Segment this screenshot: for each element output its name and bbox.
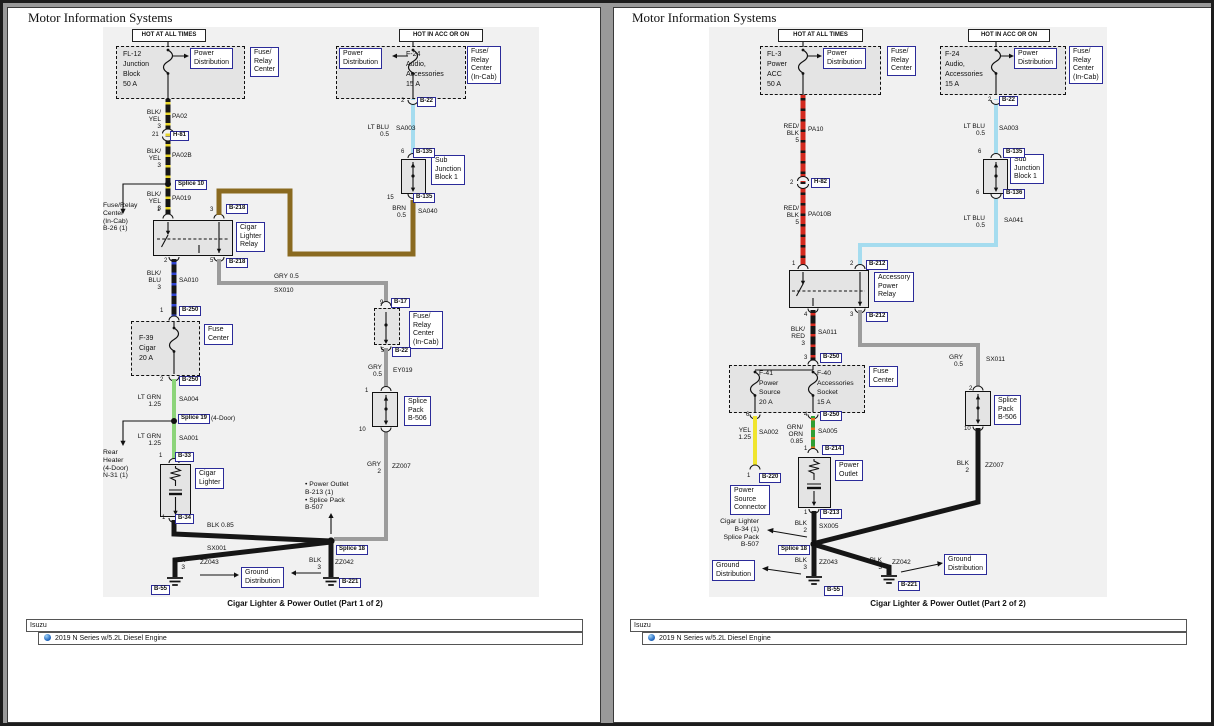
connector-tag: B-135 [413,193,435,203]
accessory-power-relay-label: Accessory Power Relay [874,272,914,302]
wire-label: RED/ BLK 5 [781,205,799,227]
power-distribution-label: Power Distribution [190,48,233,69]
ground-distribution-label: Ground Distribution [712,560,755,581]
circuit-label: PA010B [808,211,831,218]
wire-label: RED/ BLK 5 [781,123,799,145]
pin-number: 2 [850,261,853,267]
hot-in-acc-banner: HOT IN ACC OR ON [968,29,1050,42]
pin-number: 6 [401,149,404,155]
pin-number: 1 [804,510,807,516]
wire-label: BLK 3 [793,557,807,571]
pin-number: 1 [747,473,750,479]
wire-label: GRN/ ORN 0.85 [783,424,803,446]
fusible-link-fl3: FL-3 Power ACC 50 A [767,50,787,90]
pin-number: 6 [746,412,749,418]
wire-label: GRY 0.5 [366,364,382,378]
connector-tag: B-214 [822,445,844,455]
pin-number: 1 [792,261,795,267]
connector-tag: B-212 [866,260,888,270]
cigar-splice-note: Cigar Lighter B-34 (1) Splice Pack B-507 [701,518,759,549]
pin-number: 9 [380,300,383,306]
wire-label: BLK/ YEL 3 [143,191,161,213]
four-door-note: (4-Door) [211,415,235,422]
connector-tag: B-212 [866,312,888,322]
connector-tag: B-17 [391,298,410,308]
circuit-label: SA041 [1004,217,1024,224]
wire-label: LT BLU 0.5 [961,215,985,229]
pin-number: 10 [964,426,971,432]
connector-tag: B-220 [759,473,781,483]
splice-tag: Splice 19 [178,414,210,424]
connector-tag: B-33 [175,452,194,462]
globe-icon [44,634,51,641]
connector-tag: B-22 [417,97,436,107]
fuse-center-label: Fuse Center [204,324,233,345]
power-distribution-label: Power Distribution [1014,48,1057,69]
wire-label: BLK/ BLU 3 [143,270,161,292]
pin-number: 1 [162,515,165,521]
diagram-viewer: Motor Information Systems Motor Informat… [0,0,1214,726]
pin-number: 4 [804,412,807,418]
wire-label: BRN 0.5 [390,205,406,219]
pin-number: 21 [152,132,159,138]
connector-tag: B-135 [1003,148,1025,158]
fuse-relay-center-incab-label: Fuse/ Relay Center (In-Cab) [409,311,443,349]
wire-label: LT GRN 1.25 [137,433,161,447]
splice-pack-box [965,391,991,426]
power-distribution-label: Power Distribution [823,48,866,69]
circuit-label: SX011 [986,356,1005,363]
connector-tag: B-250 [820,353,842,363]
wire-label: BLK 3 [309,557,321,571]
circuit-label: SX010 [274,287,294,294]
accessory-power-relay-box [789,270,869,308]
splice-tag: Splice 18 [778,545,810,555]
wire-label: LT BLU 0.5 [365,124,389,138]
wire-label: GRY 0.5 [947,354,963,368]
sub-junction-block-box [401,159,426,194]
splice-tag: Splice 10 [175,180,207,190]
cigar-lighter-relay-box [153,220,233,256]
splice-pack-box [372,392,398,427]
globe-icon [648,634,655,641]
splice-tag: Splice 18 [336,545,368,555]
footer-brand-box: Isuzu [26,619,583,632]
wire-label: BLK/ RED 3 [787,326,805,348]
connector-tag: B-221 [898,581,920,591]
circuit-label: ZZ043 [819,559,838,566]
connector-tag: B-218 [226,258,248,268]
fusible-link-fl12: FL-12 Junction Block 50 A [123,50,149,90]
wire-label: BLK 2 [793,520,807,534]
circuit-label: SX001 [207,545,227,552]
circuit-label: SA011 [818,329,837,336]
circuit-label: SA002 [759,429,779,436]
wire-label: YEL 1.25 [733,427,751,441]
cigar-lighter-label: Cigar Lighter [195,468,224,489]
wire-label: GRY 2 [365,461,381,475]
circuit-label: SA003 [999,125,1019,132]
pin-number: 1 [804,446,807,452]
ground-distribution-label: Ground Distribution [241,567,284,588]
circuit-label: ZZ043 [200,559,219,566]
connector-tag: B-250 [179,306,201,316]
wire-label: GRY 0.5 [274,273,299,280]
wire-label: BLK 3 [173,557,185,571]
circuit-label: ZZ007 [392,463,411,470]
power-distribution-label: Power Distribution [339,48,382,69]
pin-number: 2 [401,98,404,104]
hot-in-acc-banner: HOT IN ACC OR ON [399,29,483,42]
sub-junction-label: Sub Junction Block 1 [431,155,465,185]
footer-brand-box: Isuzu [630,619,1187,632]
fuse-f24: F-24 Audio, Accessories 15 A [406,50,444,90]
connector-tag: B-135 [413,148,435,158]
circuit-label: SA005 [818,428,838,435]
pin-number: 2 [969,386,972,392]
connector-tag: B-221 [339,578,361,588]
fuse-f41: F-41 Power Source 20 A [759,369,781,407]
incab-passthrough-box [374,308,400,345]
circuit-label: SA040 [418,208,438,215]
sub-junction-label: Sub Junction Block 1 [1010,154,1044,184]
ground-distribution-label: Ground Distribution [944,554,987,575]
pin-number: 3 [850,312,853,318]
page-title: Motor Information Systems [28,10,172,26]
wire-label: LT GRN 1.25 [137,394,161,408]
pin-number: 1 [159,453,162,459]
cigar-lighter-relay-label: Cigar Lighter Relay [236,222,265,252]
pin-number: 1 [160,308,163,314]
footer-vehicle-box: 2019 N Series w/5.2L Diesel Engine [38,632,583,645]
circuit-label: PA019 [172,195,191,202]
pin-number: 3 [804,355,807,361]
connector-tag: B-55 [151,585,170,595]
connector-tag: B-22 [999,96,1018,106]
diagram-caption: Cigar Lighter & Power Outlet (Part 2 of … [803,599,1093,609]
circuit-label: SA003 [396,125,416,132]
wire-label: BLK/ YEL 3 [143,148,161,170]
power-source-connector-label: Power Source Connector [730,485,770,515]
splice-pack-label: Splice Pack B-506 [404,396,431,426]
pin-number: 5 [381,348,384,354]
wire-label: BLK 3 [868,557,882,571]
circuit-label: ZZ042 [892,559,911,566]
circuit-label: PA10 [808,126,823,133]
footer-brand: Isuzu [634,622,651,629]
pin-number: 2 [164,258,167,264]
circuit-label: SX005 [819,523,839,530]
fuse-f39: F-39 Cigar 20 A [139,334,156,364]
pin-number: 4 [804,312,807,318]
hot-at-all-times-banner: HOT AT ALL TIMES [132,29,206,42]
circuit-label: SA004 [179,396,199,403]
connector-tag: B-213 [820,509,842,519]
footer-vehicle: 2019 N Series w/5.2L Diesel Engine [659,635,771,642]
rear-heater-note: Rear Heater (4-Door) N-31 (1) [103,449,128,480]
pin-number: 6 [976,190,979,196]
connector-tag: B-250 [179,376,201,386]
fuse-center-label: Fuse Center [869,366,898,387]
cigar-lighter-box [160,464,191,517]
wire-label: BLK/ YEL 3 [143,109,161,131]
connector-tag: B-218 [226,204,248,214]
fuse-f40: F-40 Accessories Socket 15 A [817,369,854,407]
circuit-label: ZZ042 [335,559,354,566]
fuse-relay-center-incab-label: Fuse/ Relay Center (In-Cab) [1069,46,1103,84]
circuit-label: PA02 [172,113,187,120]
page-title: Motor Information Systems [632,10,776,26]
fuse-f24: F-24 Audio, Accessories 15 A [945,50,983,90]
pin-number: 5 [210,258,213,264]
splice-pack-label: Splice Pack B-506 [994,395,1021,425]
pin-number: 2 [988,97,991,103]
footer-vehicle: 2019 N Series w/5.2L Diesel Engine [55,635,167,642]
fuse-relay-center-label: Fuse/ Relay Center [250,47,279,77]
fuse-relay-center-label: Fuse/ Relay Center [887,46,916,76]
wire-label: BLK 2 [955,460,969,474]
pin-number: 10 [359,427,366,433]
pin-number: 3 [210,207,213,213]
connector-tag: B-34 [175,514,194,524]
connector-tag: B-250 [820,411,842,421]
wire-label: BLK 0.85 [207,522,234,529]
power-outlet-label: Power Outlet [835,460,863,481]
b26-note: Fuse/Relay Center (In-Cab) B-26 (1) [103,202,137,233]
footer-vehicle-box: 2019 N Series w/5.2L Diesel Engine [642,632,1187,645]
pin-number: 1 [365,388,368,394]
circuit-label: PA02B [172,152,192,159]
connector-tag: B-136 [1003,189,1025,199]
circuit-label: EY019 [393,367,413,374]
footer-brand: Isuzu [30,622,47,629]
pin-number: 6 [978,149,981,155]
connector-tag: H-81 [170,131,189,141]
diagram-caption: Cigar Lighter & Power Outlet (Part 1 of … [160,599,450,609]
outlet-splice-note: • Power Outlet B-213 (1) • Splice Pack B… [305,481,349,512]
connector-tag: B-55 [824,586,843,596]
circuit-label: ZZ007 [985,462,1004,469]
fuse-relay-center-incab-label: Fuse/ Relay Center (In-Cab) [467,46,501,84]
pin-number: 2 [790,180,793,186]
power-outlet-box [798,457,831,508]
hot-at-all-times-banner: HOT AT ALL TIMES [778,29,863,42]
connector-tag: H-82 [811,178,830,188]
pin-number: 15 [387,195,394,201]
connector-tag: B-22 [392,347,411,357]
circuit-label: SA001 [179,435,199,442]
circuit-label: SA010 [179,277,199,284]
wire-label: LT BLU 0.5 [961,123,985,137]
pin-number: 2 [160,377,163,383]
